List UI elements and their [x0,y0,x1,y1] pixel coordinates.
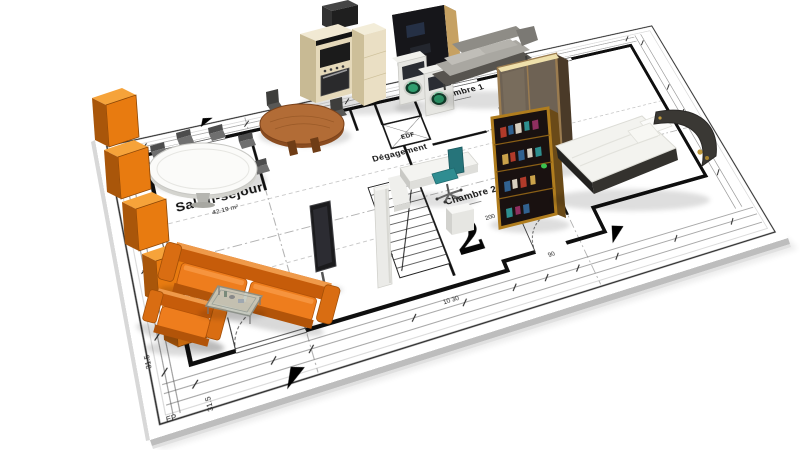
bookshelf [490,108,570,233]
double-bed [550,110,716,211]
office-desk [388,152,478,212]
floor-plan-render: Salon-séjour 42.19 m² Cuisine Dégagement… [0,0,800,450]
dining-table-oval [149,124,270,208]
nightstand-cube [446,203,474,235]
white-column [374,185,392,288]
kitchen-round-table [259,89,351,156]
furniture-overlay [0,0,800,450]
